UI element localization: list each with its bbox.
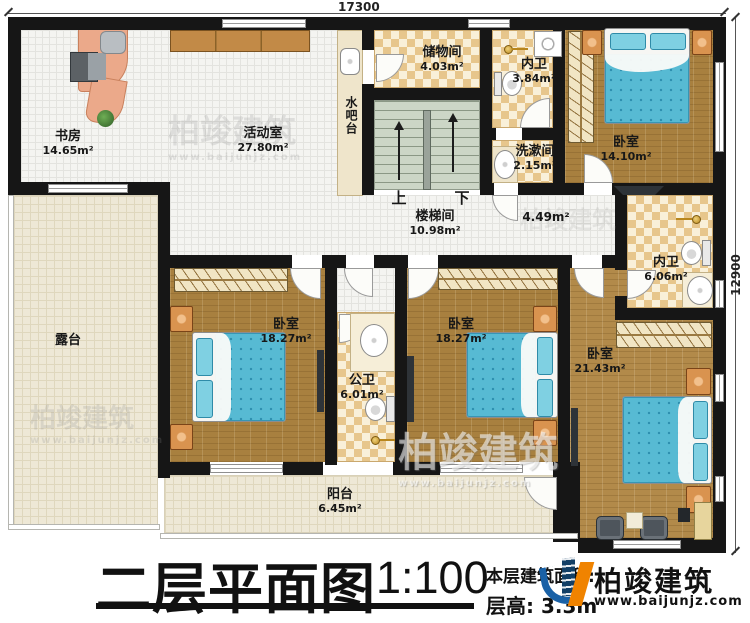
room-area: 10.98m²	[409, 225, 460, 237]
room-area: 21.43m²	[574, 363, 625, 375]
tv-bedroom-bm	[407, 356, 414, 422]
wall-corridor-south-b	[322, 255, 346, 268]
shower-arm-bath-top	[512, 48, 528, 50]
room-area: 3.84m²	[512, 73, 555, 85]
dimension-tick	[720, 7, 729, 16]
room-name: 书房	[55, 129, 81, 144]
room-name: 卧室	[587, 347, 613, 362]
potted-plant	[97, 110, 114, 127]
label-terrace: 露台	[55, 334, 81, 349]
room-area: 2.15m²	[513, 160, 556, 172]
toilet-tank-bath-public	[386, 396, 395, 422]
shower-arm-bath-right	[676, 218, 692, 220]
stair-arrow-down-line	[452, 122, 454, 172]
room-area: 27.80m²	[237, 142, 288, 154]
wall-waterbar-stairs-b	[362, 84, 374, 195]
wall-bathtop-washroom-a	[480, 128, 496, 140]
watermark-text: 柏竣建筑	[30, 404, 134, 434]
window-bedroombr-right-b	[715, 476, 724, 502]
label-water-bar: 水吧台	[343, 96, 360, 135]
room-name: 水吧台	[344, 96, 358, 135]
room-name: 洗漱间	[515, 144, 554, 159]
window-activity-top	[222, 19, 306, 28]
room-name: 卧室	[613, 135, 639, 150]
nightstand	[170, 306, 193, 332]
room-name: 储物间	[422, 45, 461, 60]
wall-washroom-bottom-a	[480, 183, 494, 195]
bed-sheet-fold	[521, 333, 536, 417]
room-name: 内卫	[521, 57, 547, 72]
label-bath-top: 内卫 3.84m²	[512, 58, 555, 85]
wall-bathtop-washroom-b	[522, 128, 565, 140]
bed-pillow	[196, 338, 213, 376]
stair-arrow-up-line	[398, 130, 400, 180]
tv-bedroom-bl	[317, 350, 324, 412]
bed-pillow	[693, 401, 708, 439]
room-area: 14.65m²	[42, 145, 93, 157]
window-bedroombr-right-a	[715, 374, 724, 402]
label-storage: 储物间 4.03m²	[420, 46, 463, 73]
bath-right-sink	[687, 276, 713, 305]
label-bath-public: 公卫 6.01m²	[340, 374, 383, 401]
room-area: 18.27m²	[435, 333, 486, 345]
label-washroom: 洗漱间 2.15m²	[513, 145, 556, 172]
room-area: 6.45m²	[318, 503, 361, 515]
label-study: 书房 14.65m²	[42, 130, 93, 157]
label-bedroom-bm: 卧室 18.27m²	[435, 318, 486, 345]
watermark: 柏竣建筑 www.baijunjz.com	[398, 420, 558, 489]
watermark-site: www.baijunjz.com	[398, 478, 558, 489]
bed-pillow	[610, 33, 646, 50]
washing-machine	[534, 31, 562, 57]
room-name: 阳台	[327, 487, 353, 502]
plan-title-text: 二层平面图	[96, 557, 376, 621]
bed-sheet-fold	[678, 397, 693, 483]
room-name: 公卫	[349, 373, 375, 388]
bed-pillow	[693, 443, 708, 481]
nightstand	[686, 368, 711, 395]
wall-bathright-left-a	[615, 195, 627, 270]
wall-bm-br-divider	[558, 262, 570, 478]
label-bedroom-tr: 卧室 14.10m²	[600, 136, 651, 163]
floor-terrace	[13, 195, 158, 528]
stair-center-rail	[423, 110, 431, 190]
dimension-right-value: 12900	[729, 254, 743, 296]
plan-scale-text: 1:100	[376, 552, 489, 603]
company-logo-site: www.baijunjz.com	[594, 594, 743, 609]
label-stair-down: 下	[454, 190, 469, 207]
nightstand	[692, 30, 712, 55]
wall-storage-bottom	[362, 88, 492, 100]
room-area: 4.03m²	[420, 61, 463, 73]
wall-corridor-south-c	[374, 255, 408, 268]
plan-scale: 1:100	[376, 552, 489, 604]
sideboard-cabinet	[170, 30, 310, 52]
dimension-top-value: 17300	[338, 0, 380, 14]
toilet-tank-bath-right	[702, 240, 711, 266]
side-table	[626, 512, 643, 529]
title-underline	[96, 603, 474, 609]
wall-corridor-south-d	[438, 255, 572, 268]
label-bedroom-br: 卧室 21.43m²	[574, 348, 625, 375]
bed-pillow	[196, 380, 213, 418]
room-area: 18.27m²	[260, 333, 311, 345]
window-bedroombl-balcony	[210, 464, 283, 473]
tv-bedroom-br	[571, 408, 578, 466]
shower-valve-bath-right	[692, 215, 701, 224]
parapet-balcony-bottom	[160, 533, 578, 539]
wardrobe-bedroom-br	[616, 322, 712, 348]
bed-pillow	[537, 337, 553, 375]
dimension-top: 17300	[338, 0, 380, 14]
nightstand	[582, 30, 602, 55]
mouse-pad	[88, 53, 106, 80]
window-bedroombr-bottom	[613, 540, 681, 549]
window-bathtop-top	[468, 19, 510, 28]
room-name: 楼梯间	[415, 209, 454, 224]
desk-chair	[100, 31, 126, 54]
nightstand	[170, 424, 193, 450]
room-name: 露台	[55, 333, 81, 348]
watermark-text: 柏竣建筑	[398, 430, 558, 476]
shower-valve-bath-public	[371, 436, 380, 445]
wall-bedroomtr-bottom-a	[553, 183, 584, 195]
bath-public-sink	[360, 324, 388, 357]
wall-waterbar-stairs-a	[362, 17, 374, 50]
desk-lamp	[678, 508, 690, 522]
parapet-terrace-bottom	[8, 524, 160, 530]
wall-bedrooms-south-a	[158, 462, 210, 475]
plan-title: 二层平面图	[96, 544, 376, 623]
room-name: 内卫	[653, 255, 679, 270]
nightstand	[533, 306, 557, 332]
stair-up-text: 上	[391, 189, 406, 207]
stair-arrow-up-head	[394, 121, 404, 130]
shower-arm-bath-public	[380, 439, 395, 441]
water-bar-sink	[340, 48, 360, 75]
watermark-site: www.baijunjz.com	[30, 435, 164, 446]
room-area: 4.49m²	[522, 210, 569, 224]
dimension-right: 12900	[729, 245, 743, 305]
wall-bathright-bottom	[615, 308, 726, 320]
watermark: 柏竣建筑 www.baijunjz.com	[30, 398, 164, 446]
window-bedroomtr-right	[715, 62, 724, 152]
room-area: 6.06m²	[644, 271, 687, 283]
stair-arrow-down-head	[448, 113, 458, 122]
wall-corridor-south-a	[158, 255, 292, 268]
window-bathright-right	[715, 280, 724, 308]
wall-bedrooms-south-b	[283, 462, 323, 475]
toilet-tank-bath-top	[494, 72, 502, 96]
room-name: 卧室	[448, 317, 474, 332]
parapet-terrace-left	[8, 195, 14, 528]
bed-sheet-fold	[215, 333, 231, 421]
floor-plan-canvas: 柏竣建筑 www.baijunjz.com 柏竣建筑 www.baijunjz.…	[0, 0, 750, 623]
room-name: 卧室	[273, 317, 299, 332]
dimension-tick	[4, 7, 13, 16]
company-site-text: www.baijunjz.com	[594, 594, 743, 609]
label-hallway-area: 4.49m²	[522, 211, 569, 224]
armchair	[596, 516, 624, 540]
label-balcony: 阳台 6.45m²	[318, 488, 361, 515]
bed-pillow	[537, 379, 553, 417]
label-activity: 活动室 27.80m²	[237, 127, 288, 154]
label-bedroom-bl: 卧室 18.27m²	[260, 318, 311, 345]
wall-bedroom-bl-right	[325, 262, 337, 465]
company-logo-icon	[540, 554, 592, 618]
room-area: 6.01m²	[340, 389, 383, 401]
stair-down-text: 下	[454, 189, 469, 207]
room-area: 14.10m²	[600, 151, 651, 163]
room-name: 活动室	[243, 126, 282, 141]
label-bath-right: 内卫 6.06m²	[644, 256, 687, 283]
writing-desk	[694, 502, 712, 540]
label-stair-up: 上	[391, 190, 406, 207]
wall-storage-bath-divider	[480, 17, 492, 195]
bed-pillow	[650, 33, 686, 50]
armchair	[640, 516, 668, 540]
window-study-terrace	[48, 184, 128, 193]
wardrobe-bedroom-bm	[438, 268, 558, 290]
label-stairwell: 楼梯间 10.98m²	[409, 210, 460, 237]
wardrobe-bedroom-bl	[174, 268, 288, 292]
dimension-tick	[731, 546, 740, 555]
wall-left-upper	[8, 17, 21, 195]
